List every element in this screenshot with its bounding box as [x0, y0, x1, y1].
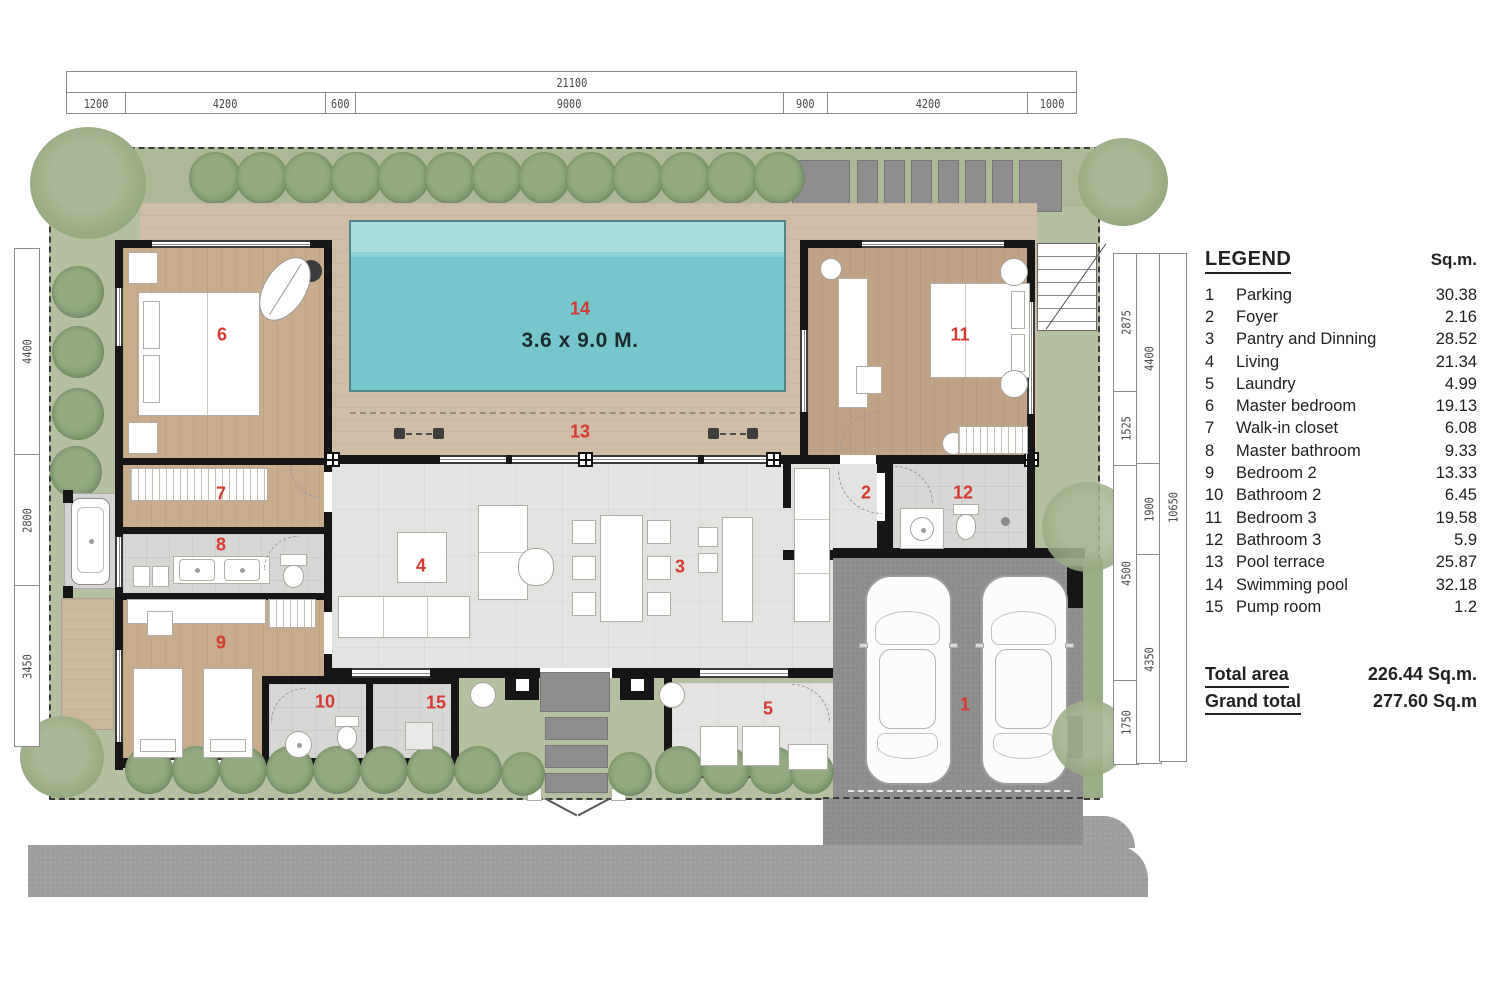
- porch-column: [505, 670, 539, 700]
- room-label-walkin-closet: 7: [216, 484, 226, 505]
- dim-text: 900: [796, 96, 815, 111]
- legend-item: 6Master bedroom19.13: [1205, 395, 1477, 417]
- shelf-line: [795, 573, 829, 574]
- tree-icon: [454, 746, 502, 794]
- towel-shelf: [152, 566, 169, 587]
- gate-leaf: [545, 798, 578, 817]
- window: [352, 668, 430, 678]
- legend-item: 4Living21.34: [1205, 351, 1477, 373]
- pillow: [1011, 334, 1025, 372]
- legend-item-num: 3: [1205, 330, 1236, 349]
- dining-chair: [572, 556, 596, 580]
- tree-icon: [52, 266, 104, 318]
- bathtub: [71, 498, 110, 585]
- tree-icon: [659, 152, 711, 204]
- dim-text: 4200: [213, 96, 238, 111]
- car-windshield: [991, 611, 1056, 645]
- tree-icon: [236, 152, 288, 204]
- shelf-line: [795, 519, 829, 520]
- pool-ledge-edge: [351, 252, 784, 257]
- sink: [224, 559, 260, 581]
- sofa: [338, 596, 470, 638]
- legend-item-name: Laundry: [1236, 375, 1407, 394]
- dim-text: 9000: [557, 96, 582, 111]
- legend-item: 1Parking30.38: [1205, 284, 1477, 306]
- deck-fitting: [396, 433, 442, 445]
- car-rear-window: [993, 733, 1054, 759]
- toilet-bowl: [337, 726, 357, 750]
- room-label-laundry: 5: [763, 699, 773, 720]
- planter-circle: [470, 682, 496, 708]
- room-label-pool-terrace: 13: [570, 422, 590, 443]
- car-mirror: [975, 643, 984, 648]
- fitting-end: [433, 428, 444, 439]
- tree-icon: [283, 152, 335, 204]
- car-mirror: [949, 643, 958, 648]
- window: [115, 288, 123, 346]
- tree-icon: [501, 752, 545, 796]
- legend-title: LEGEND: [1205, 248, 1291, 274]
- tree-icon: [50, 446, 102, 498]
- tree-icon: [706, 152, 758, 204]
- legend-item-name: Bedroom 2: [1236, 464, 1407, 483]
- car-mirror: [859, 643, 868, 648]
- deck-fitting: [710, 433, 756, 445]
- kitchen-island: [722, 517, 753, 622]
- dim-text: 1750: [1119, 710, 1134, 735]
- sink-round: [910, 517, 934, 541]
- armchair: [518, 548, 554, 586]
- wardrobe: [130, 468, 268, 501]
- side-table-round: [1000, 258, 1028, 286]
- legend-item: 7Walk-in closet6.08: [1205, 418, 1477, 440]
- wardrobe: [268, 599, 316, 628]
- towel-shelf: [133, 566, 150, 587]
- wall: [262, 684, 269, 764]
- wall: [1067, 566, 1083, 608]
- tree-icon: [189, 152, 241, 204]
- tree-icon: [608, 752, 652, 796]
- room-label-bedroom2: 9: [216, 633, 226, 654]
- dim-segment: 900: [783, 92, 828, 114]
- site-plan-canvas: 1 2 3 4 5 6 7 8 9 10 11 12 13 14 15 3.6 …: [0, 0, 1500, 1000]
- dim-text: 1900: [1142, 497, 1157, 522]
- total-area-label: Total area: [1205, 664, 1289, 688]
- side-deck-patio: [61, 598, 114, 730]
- legend-item-num: 10: [1205, 486, 1236, 505]
- legend-item-name: Bedroom 3: [1236, 509, 1407, 528]
- right-dimension-ruler-middle: 4400 1900 4350: [1136, 253, 1160, 764]
- driveway: [823, 798, 1083, 848]
- legend-item: 11Bedroom 319.58: [1205, 507, 1477, 529]
- driveway-flare: [1083, 816, 1135, 848]
- dim-text: 10650: [1166, 492, 1181, 523]
- legend-item-name: Living: [1236, 353, 1407, 372]
- total-area-row: Total area226.44 Sq.m.: [1205, 664, 1477, 691]
- blanket-line: [207, 293, 208, 415]
- dim-text: 1200: [83, 96, 108, 111]
- left-dimension-ruler: 4400 2800 3450: [14, 248, 38, 747]
- legend-item-area: 19.58: [1407, 509, 1477, 528]
- cushion-line: [383, 597, 384, 637]
- window: [115, 650, 123, 742]
- legend-item-num: 12: [1205, 531, 1236, 550]
- legend-item-area: 6.45: [1407, 486, 1477, 505]
- tree-icon: [655, 746, 703, 794]
- tree-icon: [424, 152, 476, 204]
- dim-total-height: 10650: [1159, 253, 1187, 762]
- grand-total-row: Grand total277.60 Sq.m: [1205, 691, 1477, 718]
- legend-item-name: Pump room: [1236, 598, 1407, 617]
- legend-item-num: 15: [1205, 598, 1236, 617]
- legend-item: 2Foyer2.16: [1205, 306, 1477, 328]
- pillow: [140, 739, 176, 752]
- legend-item-name: Swimming pool: [1236, 576, 1407, 595]
- sofa: [478, 505, 528, 600]
- legend-item: 15Pump room1.2: [1205, 596, 1477, 618]
- dryer: [742, 726, 780, 766]
- legend-item-num: 9: [1205, 464, 1236, 483]
- ceiling-lamp: [820, 258, 842, 280]
- wardrobe: [958, 426, 1028, 454]
- dim-text: 1000: [1040, 96, 1065, 111]
- room-label-pantry-dinning: 3: [675, 557, 685, 578]
- car-roof: [995, 649, 1052, 729]
- legend-item: 9Bedroom 213.33: [1205, 462, 1477, 484]
- bar-stool: [698, 527, 718, 547]
- drain-icon: [195, 568, 200, 573]
- legend-item-area: 21.34: [1407, 353, 1477, 372]
- tree-icon: [360, 746, 408, 794]
- dim-text: 3450: [20, 654, 35, 679]
- car-mirror: [1065, 643, 1074, 648]
- grand-total-label: Grand total: [1205, 691, 1301, 715]
- surfboard-stringer: [269, 264, 302, 315]
- dim-text: 4350: [1142, 647, 1157, 672]
- legend-item-area: 30.38: [1407, 286, 1477, 305]
- dim-text: 600: [331, 96, 350, 111]
- legend-item: 14Swimming pool32.18: [1205, 574, 1477, 596]
- legend-item-area: 2.16: [1407, 308, 1477, 327]
- side-table: [147, 611, 173, 636]
- legend-item-num: 5: [1205, 375, 1236, 394]
- entry-step: [545, 773, 608, 793]
- tree-icon: [52, 388, 104, 440]
- laundry-shelf: [788, 744, 828, 770]
- window: [704, 455, 772, 464]
- room-label-bathroom2: 10: [315, 692, 335, 713]
- parking-dash-line: [848, 790, 1070, 792]
- tree-icon: [612, 152, 664, 204]
- fitting-end: [394, 428, 405, 439]
- dim-text: 2800: [20, 508, 35, 533]
- dining-chair: [572, 592, 596, 616]
- legend-item-num: 14: [1205, 576, 1236, 595]
- dining-chair: [647, 556, 671, 580]
- entry-landing: [540, 672, 610, 712]
- dim-segment: 4200: [827, 92, 1028, 114]
- legend-unit-header: Sq.m.: [1431, 250, 1477, 270]
- dining-chair: [647, 592, 671, 616]
- window: [800, 330, 808, 412]
- legend-item-area: 4.99: [1407, 375, 1477, 394]
- dim-segment: 4400: [14, 248, 40, 455]
- legend-item: 8Master bathroom9.33: [1205, 440, 1477, 462]
- desk-chair: [856, 366, 882, 394]
- legend-item-name: Walk-in closet: [1236, 419, 1407, 438]
- dim-text: 21100: [556, 75, 587, 90]
- drain-icon: [297, 743, 302, 748]
- tree-icon: [313, 746, 361, 794]
- large-tree-icon: [1078, 138, 1168, 226]
- legend-item-num: 8: [1205, 442, 1236, 461]
- column-marker: [325, 452, 340, 467]
- tree-icon: [330, 152, 382, 204]
- tree-icon: [753, 152, 805, 204]
- dim-segment: 1200: [66, 92, 126, 114]
- car-windshield: [875, 611, 940, 645]
- grand-total-value: 277.60 Sq.m: [1373, 691, 1477, 712]
- drain-icon: [921, 528, 926, 533]
- bar-stool: [698, 553, 718, 573]
- nightstand: [128, 422, 158, 454]
- tree-icon: [518, 152, 570, 204]
- wall: [63, 490, 73, 503]
- entry-step: [545, 717, 608, 740]
- porch-column: [620, 670, 654, 700]
- sink-round: [285, 731, 312, 758]
- room-label-parking: 1: [960, 695, 970, 716]
- legend-item-area: 1.2: [1407, 598, 1477, 617]
- right-dimension-ruler-outer: 10650: [1159, 253, 1185, 762]
- room-label-bedroom3: 11: [950, 325, 969, 346]
- fitting-end: [708, 428, 719, 439]
- dim-total-width: 21100: [66, 71, 1077, 93]
- legend-item: 3Pantry and Dinning28.52: [1205, 329, 1477, 351]
- dim-text: 4200: [915, 96, 940, 111]
- gate-leaf: [578, 798, 611, 817]
- dining-chair: [647, 520, 671, 544]
- dim-segment: 4200: [125, 92, 326, 114]
- dim-segment: 3450: [14, 585, 40, 747]
- tree-icon: [471, 152, 523, 204]
- cushion-line: [479, 552, 527, 553]
- legend-item-name: Master bathroom: [1236, 442, 1407, 461]
- legend-item-name: Pool terrace: [1236, 553, 1407, 572]
- room-label-living: 4: [416, 556, 426, 577]
- pillow: [143, 355, 160, 403]
- tree-icon: [52, 326, 104, 378]
- dim-text: 4500: [1119, 561, 1134, 586]
- pantry-counter: [794, 468, 830, 622]
- car-rear-window: [877, 733, 938, 759]
- cushion-line: [427, 597, 428, 637]
- legend-item-num: 7: [1205, 419, 1236, 438]
- legend-item-area: 9.33: [1407, 442, 1477, 461]
- room-label-bathroom3: 12: [953, 483, 973, 504]
- toilet-bowl: [956, 514, 976, 540]
- window: [862, 240, 1004, 248]
- pool-size-label: 3.6 x 9.0 M.: [522, 329, 639, 353]
- window: [440, 455, 506, 464]
- legend-item-name: Foyer: [1236, 308, 1407, 327]
- bed-double: [138, 292, 260, 416]
- window: [152, 240, 310, 248]
- legend-item: 10Bathroom 26.45: [1205, 485, 1477, 507]
- legend-item-num: 1: [1205, 286, 1236, 305]
- legend-item-num: 13: [1205, 553, 1236, 572]
- legend-panel: LEGEND Sq.m. 1Parking30.38 2Foyer2.16 3P…: [1205, 248, 1477, 718]
- legend-item-num: 4: [1205, 353, 1236, 372]
- column-marker: [766, 452, 781, 467]
- legend-item-area: 13.33: [1407, 464, 1477, 483]
- legend-item-name: Master bedroom: [1236, 397, 1407, 416]
- total-area-value: 226.44 Sq.m.: [1368, 664, 1477, 685]
- dining-chair: [572, 520, 596, 544]
- door-opening: [324, 472, 332, 512]
- door-opening: [324, 612, 332, 654]
- side-table-round: [1000, 370, 1028, 398]
- column-marker: [578, 452, 593, 467]
- legend-item: 5Laundry4.99: [1205, 373, 1477, 395]
- room-label-foyer: 2: [861, 483, 871, 504]
- planter-circle: [659, 682, 685, 708]
- washer: [700, 726, 738, 766]
- shower-head-icon: [1001, 517, 1010, 526]
- wall: [885, 463, 893, 550]
- legend-item-num: 6: [1205, 397, 1236, 416]
- wall: [123, 527, 324, 534]
- bed-single: [203, 668, 253, 758]
- dim-text: 4400: [1142, 346, 1157, 371]
- dim-segment: 9000: [355, 92, 785, 114]
- legend-item-area: 28.52: [1407, 330, 1477, 349]
- tree-icon: [407, 746, 455, 794]
- legend-item-area: 25.87: [1407, 553, 1477, 572]
- sink: [179, 559, 215, 581]
- room-label-master-bath: 8: [216, 535, 226, 556]
- stairs: [1037, 243, 1097, 331]
- top-dimension-ruler: 21100 1200 4200 600 9000 900 4200 1000: [66, 71, 1077, 114]
- tree-icon: [377, 152, 429, 204]
- window: [115, 537, 123, 587]
- legend-item-num: 11: [1205, 509, 1236, 528]
- bed-double: [930, 283, 1030, 378]
- boundary-dash-across-drive: [823, 797, 1083, 799]
- fitting-end: [747, 428, 758, 439]
- pillow: [143, 301, 160, 349]
- dining-table: [600, 515, 643, 622]
- pillow: [1011, 291, 1025, 329]
- car-roof: [879, 649, 936, 729]
- legend-item: 12Bathroom 35.9: [1205, 529, 1477, 551]
- dim-text: 4400: [20, 339, 35, 364]
- car: [865, 575, 952, 785]
- legend-item-name: Bathroom 2: [1236, 486, 1407, 505]
- sliding-door: [512, 455, 698, 464]
- dim-text: 2875: [1119, 310, 1134, 335]
- dim-segment: 1000: [1027, 92, 1077, 114]
- road: [28, 845, 1148, 897]
- legend-item: 13Pool terrace25.87: [1205, 552, 1477, 574]
- wall: [451, 676, 459, 768]
- dim-text: 1525: [1119, 416, 1134, 441]
- legend-item-name: Bathroom 3: [1236, 531, 1407, 550]
- room-label-pump-room: 15: [426, 693, 446, 714]
- legend-item-area: 19.13: [1407, 397, 1477, 416]
- entry-step: [545, 745, 608, 768]
- large-tree-icon: [30, 127, 146, 239]
- nightstand: [128, 252, 158, 284]
- dim-segment: 600: [325, 92, 356, 114]
- tree-icon: [565, 152, 617, 204]
- pool-shallow-ledge: [351, 222, 784, 252]
- legend-item-num: 2: [1205, 308, 1236, 327]
- drain-icon: [240, 568, 245, 573]
- legend-item-name: Parking: [1236, 286, 1407, 305]
- legend-item-area: 32.18: [1407, 576, 1477, 595]
- wall: [783, 463, 791, 508]
- right-dimension-ruler-inner: 2875 1525 4500 1750: [1113, 253, 1137, 765]
- room-label-pool: 14: [570, 299, 590, 320]
- pillow: [210, 739, 246, 752]
- door-opening: [840, 455, 876, 464]
- room-label-master-bedroom: 6: [217, 325, 227, 346]
- window: [700, 668, 788, 678]
- bed-single: [133, 668, 183, 758]
- legend-item-area: 5.9: [1407, 531, 1477, 550]
- pump-equipment: [405, 722, 433, 750]
- legend-item-area: 6.08: [1407, 419, 1477, 438]
- legend-item-name: Pantry and Dinning: [1236, 330, 1407, 349]
- dim-segment: 2800: [14, 454, 40, 586]
- drain-icon: [89, 539, 94, 544]
- wall: [123, 458, 324, 465]
